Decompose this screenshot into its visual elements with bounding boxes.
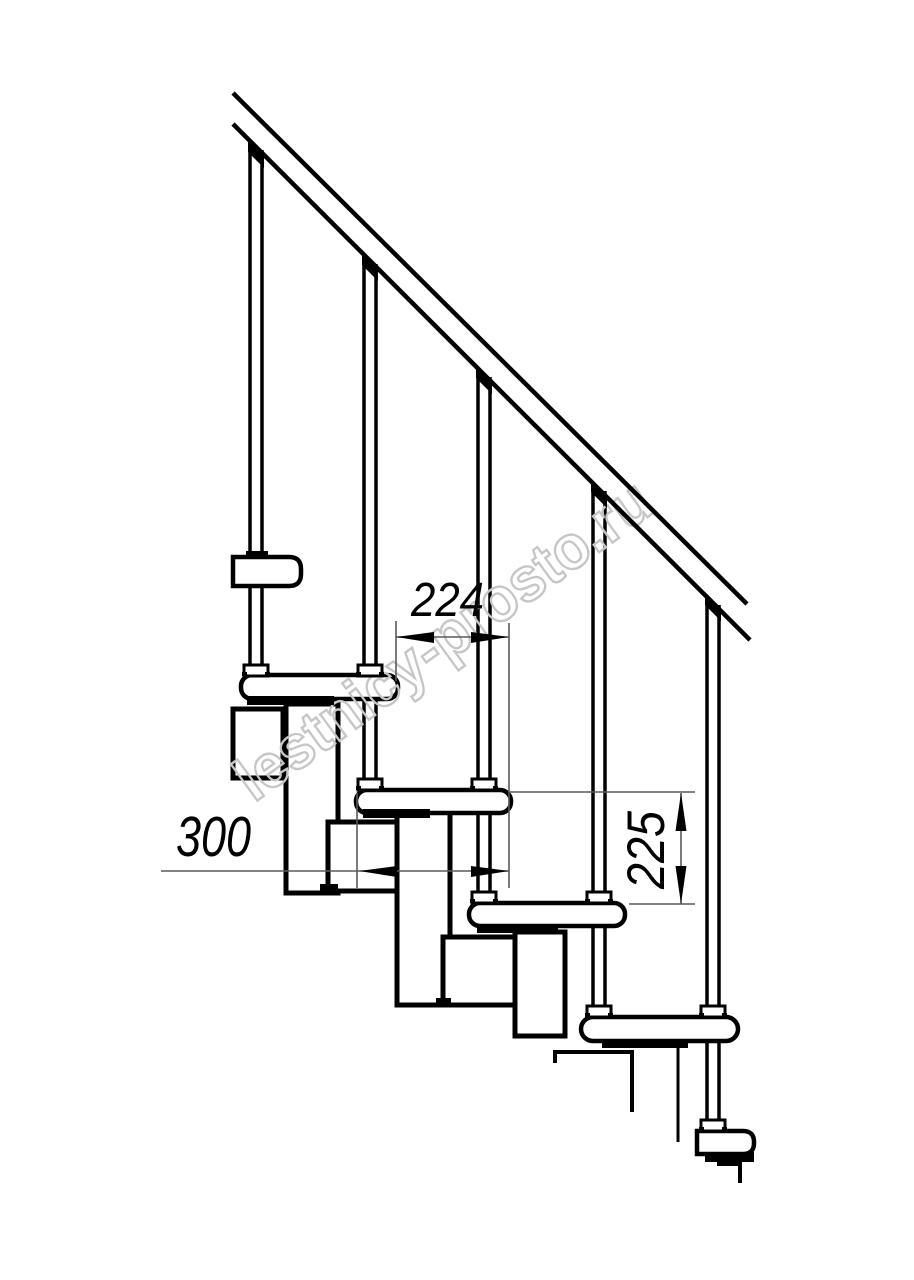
baluster-5 (707, 605, 719, 1128)
dimension-step-rise-label: 225 (617, 811, 676, 890)
watermark: lestnicy-prosto.ru (222, 466, 665, 815)
staircase-technical-drawing: lestnicy-prosto.ru (0, 0, 914, 1280)
module-square-3 (443, 937, 517, 1005)
staircase-drawing-canvas: lestnicy-prosto.ru (0, 0, 914, 1280)
watermark-text: lestnicy-prosto.ru (222, 466, 665, 815)
baluster-1 (250, 150, 262, 675)
dimension-tread-run-label: 224 (410, 574, 484, 627)
module-under-tread-4 (515, 932, 565, 1036)
tread-5 (581, 1017, 738, 1041)
dimension-module-length-label: 300 (176, 805, 251, 869)
module-square-2 (328, 822, 404, 891)
tread-6-partial (697, 1131, 754, 1154)
tread-end-view (233, 557, 301, 586)
tread-4 (469, 903, 625, 926)
